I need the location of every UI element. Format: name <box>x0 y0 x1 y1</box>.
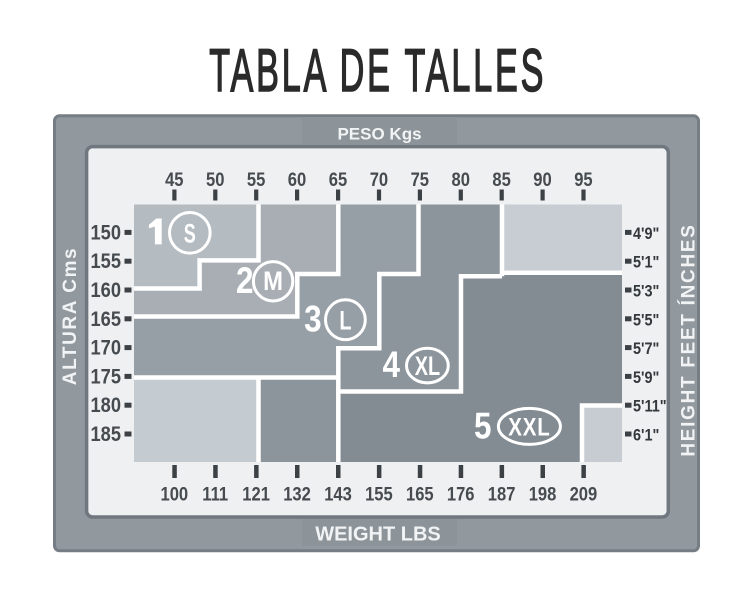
svg-text:187: 187 <box>488 483 516 505</box>
svg-text:50: 50 <box>206 169 224 191</box>
svg-text:80: 80 <box>451 169 469 191</box>
svg-text:111: 111 <box>202 483 228 505</box>
svg-text:S: S <box>184 218 196 248</box>
svg-text:HEIGHT FEET ÍNCHES: HEIGHT FEET ÍNCHES <box>678 223 700 456</box>
svg-text:121: 121 <box>242 483 270 505</box>
svg-text:6'1": 6'1" <box>633 426 659 444</box>
svg-text:55: 55 <box>247 169 265 191</box>
svg-text:XXL: XXL <box>508 413 550 441</box>
svg-text:176: 176 <box>447 483 475 505</box>
svg-text:150: 150 <box>91 221 121 245</box>
svg-text:4: 4 <box>382 345 399 386</box>
svg-text:ALTURA Cms: ALTURA Cms <box>60 247 81 385</box>
svg-text:160: 160 <box>91 279 121 303</box>
svg-text:5'11": 5'11" <box>633 398 667 416</box>
svg-text:5'5": 5'5" <box>633 311 659 329</box>
svg-text:165: 165 <box>406 483 434 505</box>
svg-text:5'9": 5'9" <box>633 369 659 387</box>
svg-text:5'7": 5'7" <box>633 340 659 358</box>
svg-text:XL: XL <box>415 351 440 380</box>
svg-text:WEIGHT LBS: WEIGHT LBS <box>315 524 441 546</box>
svg-text:PESO Kgs: PESO Kgs <box>337 125 421 144</box>
svg-text:TABLA DE TALLES: TABLA DE TALLES <box>209 38 546 104</box>
svg-text:143: 143 <box>324 483 352 505</box>
svg-text:170: 170 <box>91 336 121 360</box>
svg-text:100: 100 <box>160 483 188 505</box>
svg-text:70: 70 <box>370 169 388 191</box>
svg-text:65: 65 <box>329 169 347 191</box>
svg-text:155: 155 <box>365 483 393 505</box>
svg-text:3: 3 <box>304 299 321 340</box>
svg-text:180: 180 <box>91 394 121 418</box>
svg-text:155: 155 <box>91 250 121 274</box>
svg-text:45: 45 <box>165 169 183 191</box>
svg-text:209: 209 <box>570 483 598 505</box>
svg-text:132: 132 <box>283 483 311 505</box>
svg-text:5'3": 5'3" <box>633 282 659 300</box>
svg-text:175: 175 <box>91 365 121 389</box>
svg-text:95: 95 <box>574 169 592 191</box>
svg-text:198: 198 <box>529 483 557 505</box>
svg-text:90: 90 <box>533 169 551 191</box>
svg-text:5'1": 5'1" <box>633 254 659 272</box>
svg-text:60: 60 <box>288 169 306 191</box>
svg-text:75: 75 <box>411 169 429 191</box>
svg-text:85: 85 <box>492 169 510 191</box>
svg-text:165: 165 <box>91 307 121 331</box>
svg-text:M: M <box>263 267 283 296</box>
svg-text:4'9": 4'9" <box>633 225 659 243</box>
svg-text:2: 2 <box>236 260 253 301</box>
svg-text:5: 5 <box>474 406 491 447</box>
svg-text:185: 185 <box>91 423 121 447</box>
svg-text:L: L <box>339 305 351 334</box>
